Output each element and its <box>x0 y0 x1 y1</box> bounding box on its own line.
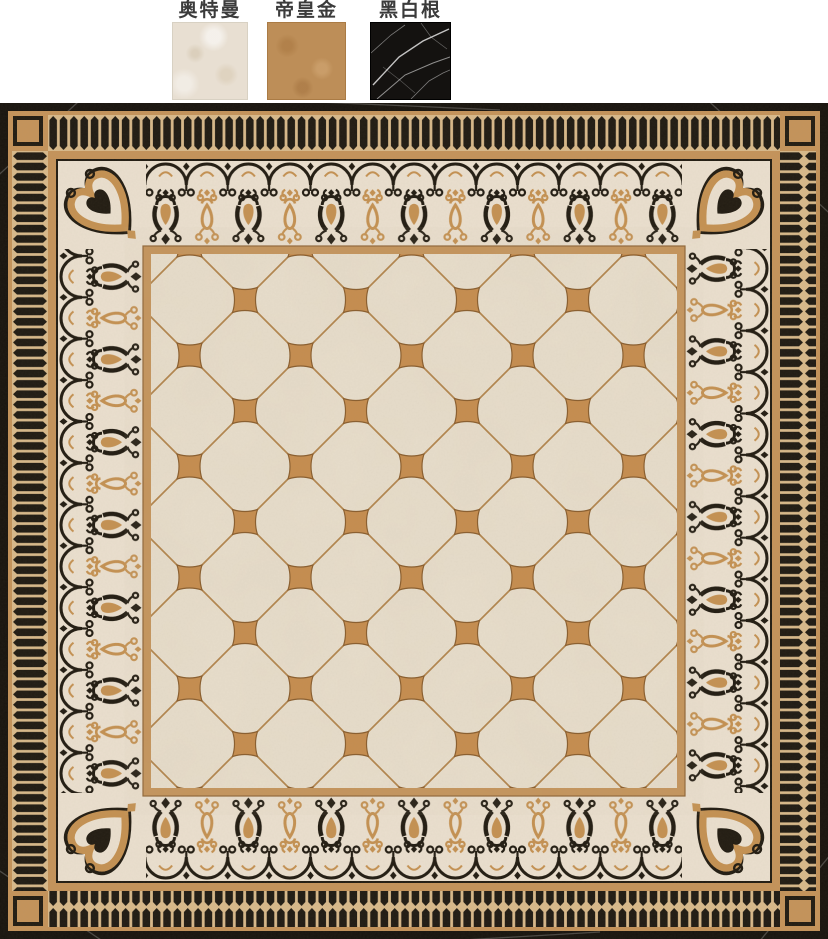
product-sheet: 奥特曼 帝皇金 黑白根 <box>0 0 828 939</box>
swatch-label-aoteman: 奥特曼 <box>172 2 248 19</box>
material-swatch-row: 奥特曼 帝皇金 黑白根 <box>0 0 828 103</box>
swatch-sample-black-marble <box>370 22 451 100</box>
swatch-sample-cream-marble <box>172 22 248 100</box>
black-marble-veins-graphic <box>371 23 450 99</box>
swatch-dihuangjin: 帝皇金 <box>267 2 346 100</box>
swatch-aoteman: 奥特曼 <box>172 2 248 100</box>
swatch-label-dihuangjin: 帝皇金 <box>267 2 346 19</box>
medallion-svg <box>0 103 828 939</box>
texture-overlay <box>0 103 828 939</box>
swatch-heibaigen: 黑白根 <box>370 2 451 100</box>
medallion-artwork <box>0 103 828 939</box>
swatch-sample-gold-marble <box>267 22 346 100</box>
swatch-label-heibaigen: 黑白根 <box>370 2 451 19</box>
